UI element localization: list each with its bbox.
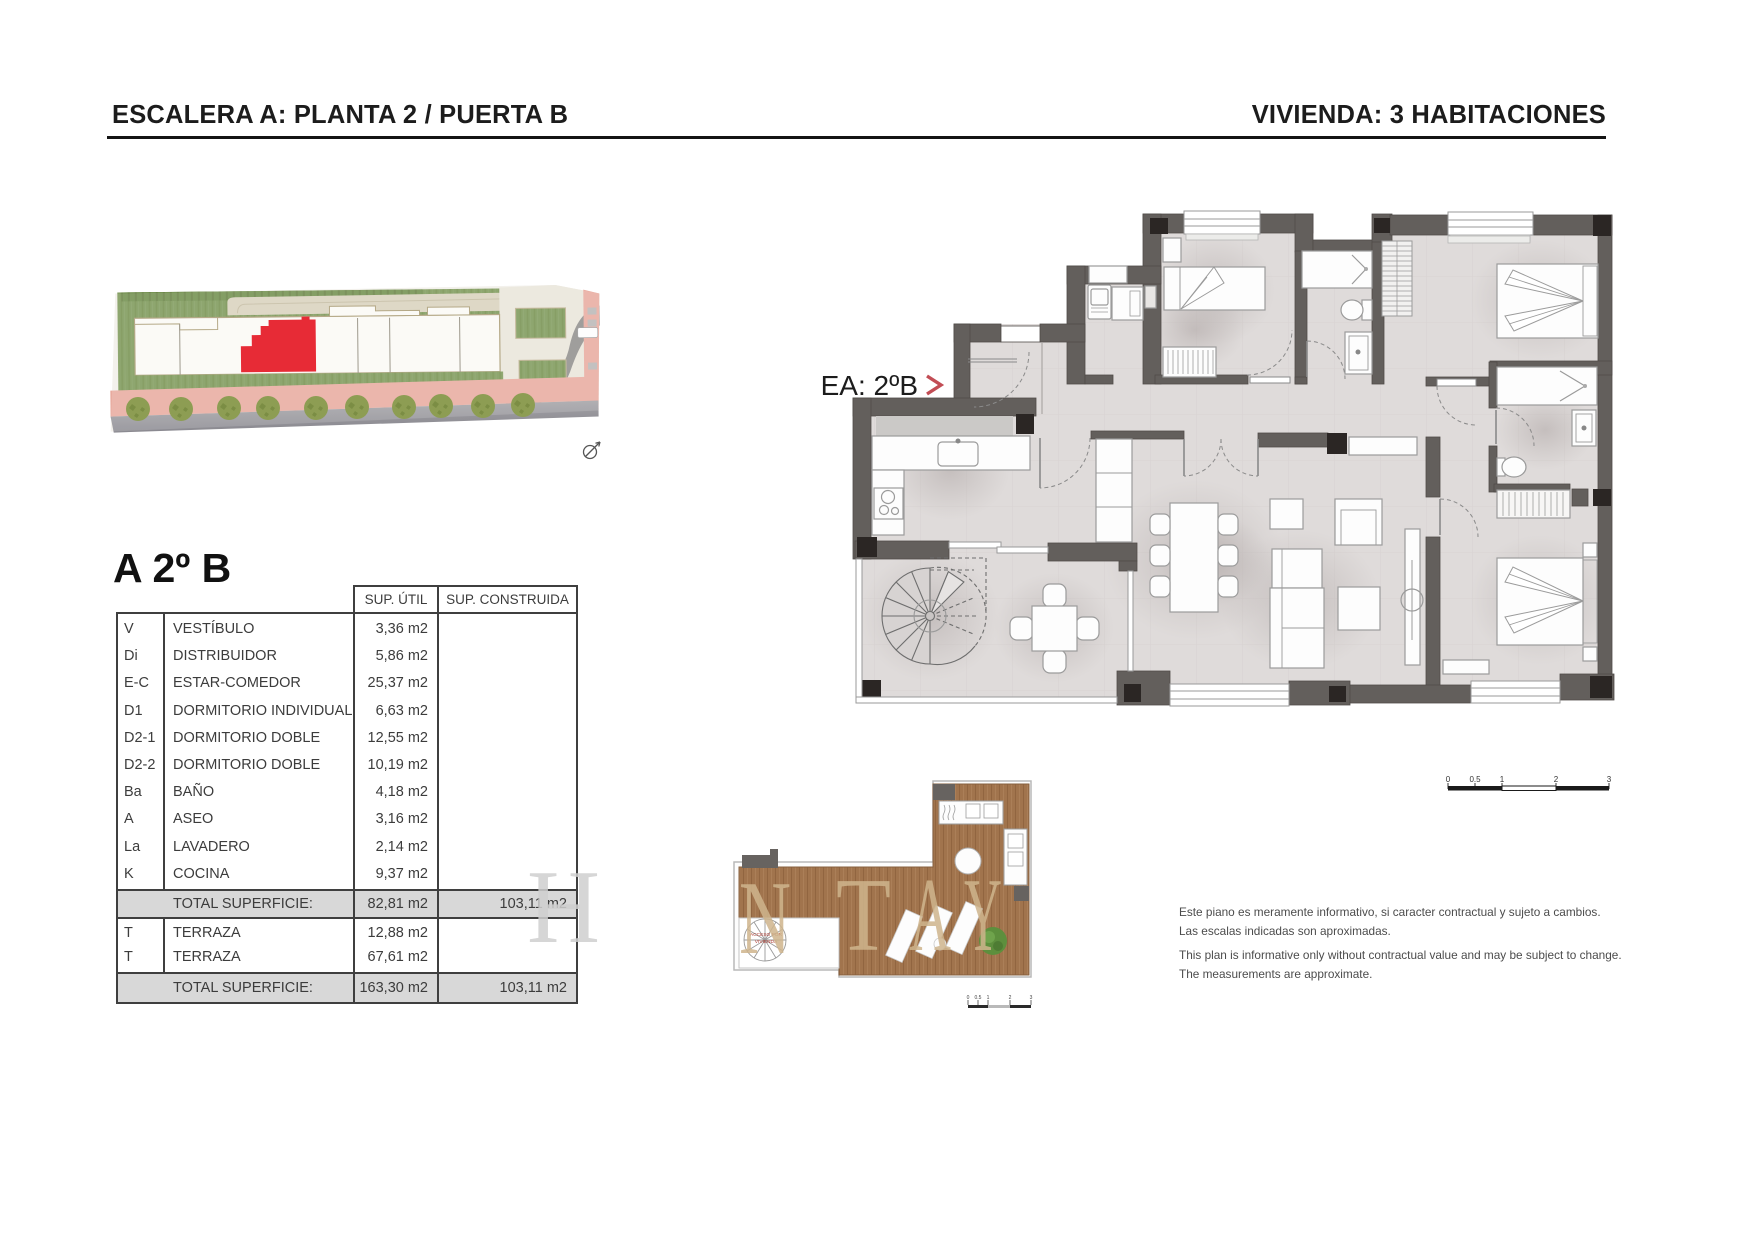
- svg-text:ACCESO POR: ACCESO POR: [750, 932, 783, 938]
- svg-text:0.5: 0.5: [1469, 775, 1481, 784]
- svg-text:EA: 2ºB: EA: 2ºB: [821, 370, 918, 401]
- svg-text:2: 2: [1009, 995, 1012, 1001]
- svg-text:VIVIENDA: VIVIENDA: [755, 939, 778, 945]
- svg-text:1: 1: [987, 995, 990, 1001]
- svg-text:3: 3: [1607, 775, 1612, 784]
- svg-text:0: 0: [1446, 775, 1451, 784]
- svg-text:1: 1: [1500, 775, 1505, 784]
- svg-text:0: 0: [967, 995, 970, 1001]
- svg-text:3: 3: [1030, 995, 1033, 1001]
- svg-text:0.5: 0.5: [975, 995, 982, 1001]
- svg-text:2: 2: [1554, 775, 1559, 784]
